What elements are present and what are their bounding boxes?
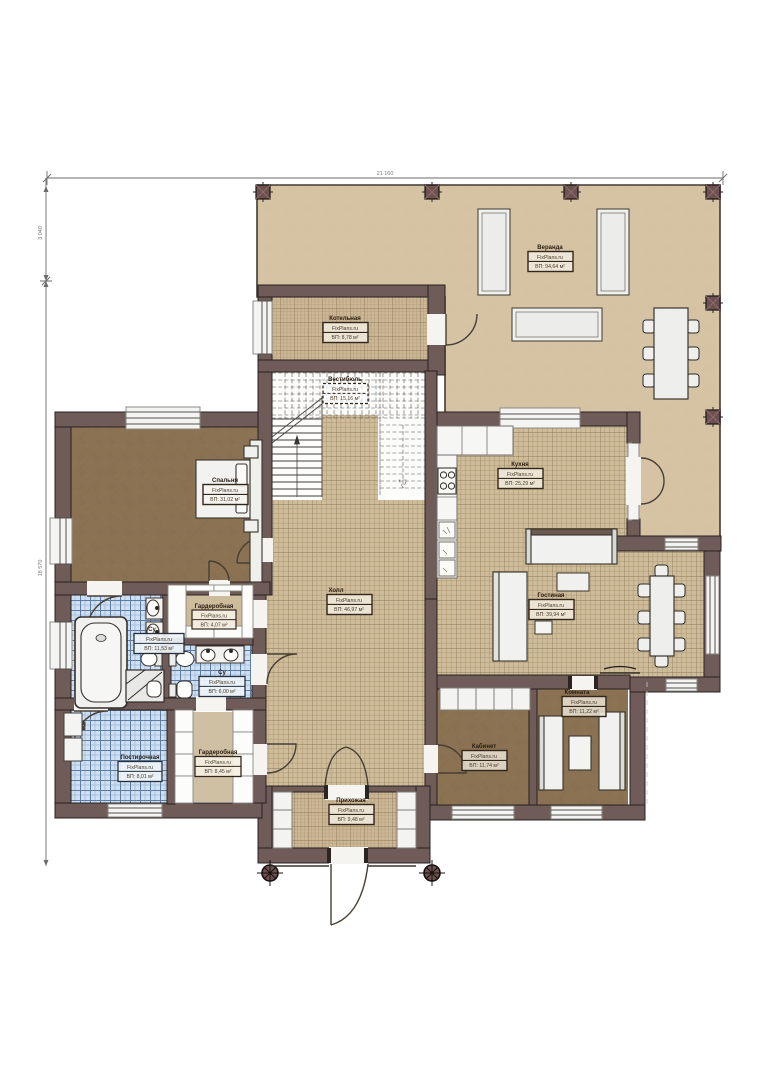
svg-text:FixPlans.ru: FixPlans.ru [338,808,364,814]
svg-text:18 570: 18 570 [38,560,44,577]
svg-text:3 040: 3 040 [38,226,44,240]
svg-text:ВП: 9,48 м²: ВП: 9,48 м² [338,817,365,823]
svg-text:ВП: 94,64 м²: ВП: 94,64 м² [535,264,565,270]
svg-text:Котельная: Котельная [329,316,361,322]
svg-text:ВП: 31,02 м²: ВП: 31,02 м² [210,497,240,503]
svg-text:FixPlans.ru: FixPlans.ru [471,754,497,760]
svg-text:ВП: 11,53 м²: ВП: 11,53 м² [144,646,174,652]
svg-text:21 160: 21 160 [377,171,394,177]
svg-text:FixPlans.ru: FixPlans.ru [212,488,238,494]
svg-text:Гардеробная: Гардеробная [195,603,234,610]
svg-text:FixPlans.ru: FixPlans.ru [146,637,172,643]
svg-text:ВП: 8,01 м²: ВП: 8,01 м² [127,774,154,780]
svg-text:ВП: 4,07 м²: ВП: 4,07 м² [201,622,228,628]
svg-text:FixPlans.ru: FixPlans.ru [127,765,153,771]
svg-text:Комната: Комната [565,690,591,696]
svg-text:ВП: 11,74 м²: ВП: 11,74 м² [469,763,499,769]
svg-text:Холл: Холл [328,588,343,594]
svg-text:ВП: 25,29 м²: ВП: 25,29 м² [505,481,535,487]
svg-text:FixPlans.ru: FixPlans.ru [507,472,533,478]
svg-text:Су: Су [148,627,156,633]
svg-text:Гостиная: Гостиная [537,593,565,599]
svg-text:FixPlans.ru: FixPlans.ru [537,255,563,261]
svg-text:ВП: 8,78 м²: ВП: 8,78 м² [332,335,359,341]
svg-text:ВП: 46,97 м²: ВП: 46,97 м² [334,607,364,613]
svg-text:ВП: 6,00 м²: ВП: 6,00 м² [209,689,236,695]
svg-text:Гардеробная: Гардеробная [199,749,238,756]
svg-text:FixPlans.ru: FixPlans.ru [205,760,231,766]
svg-text:Спальня: Спальня [212,478,238,484]
svg-text:FixPlans.ru: FixPlans.ru [201,614,227,620]
svg-text:Кабинет: Кабинет [472,743,496,750]
svg-text:ст.м: ст.м [81,722,86,730]
svg-text:Кухня: Кухня [511,462,529,468]
svg-text:Веранда: Веранда [537,245,563,251]
svg-text:Су: Су [218,670,226,676]
svg-text:FixPlans.ru: FixPlans.ru [209,680,235,686]
svg-text:ВП: 15,16 м²: ВП: 15,16 м² [330,396,360,402]
svg-text:ВП: 8,45 м²: ВП: 8,45 м² [205,769,232,775]
svg-text:FixPlans.ru: FixPlans.ru [336,598,362,604]
svg-text:FixPlans.ru: FixPlans.ru [571,700,597,706]
svg-text:ВП: 11,22 м²: ВП: 11,22 м² [569,709,599,715]
svg-text:Постирочная: Постирочная [121,755,160,761]
svg-text:Прихожая: Прихожая [336,798,366,804]
svg-text:FixPlans.ru: FixPlans.ru [332,387,358,393]
svg-text:Вестибюль: Вестибюль [328,376,362,383]
svg-text:FixPlans.ru: FixPlans.ru [332,326,358,332]
svg-text:FixPlans.ru: FixPlans.ru [538,603,564,609]
svg-text:ВП: 39,94 м²: ВП: 39,94 м² [536,612,566,618]
